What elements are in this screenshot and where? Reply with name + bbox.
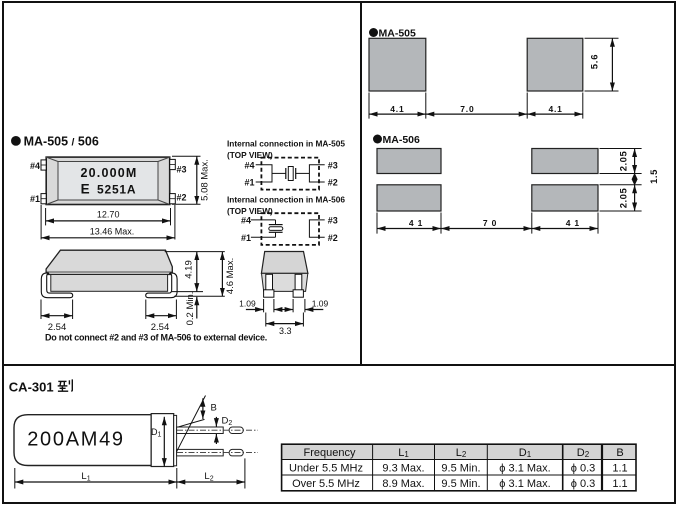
svg-text:#4: #4 — [241, 216, 251, 226]
svg-text:9.5 Min.: 9.5 Min. — [441, 463, 480, 475]
svg-text:#2: #2 — [328, 178, 338, 188]
svg-text:4.1: 4.1 — [390, 104, 404, 114]
svg-text:Over 5.5 MHz: Over 5.5 MHz — [292, 478, 360, 490]
svg-text:7.0: 7.0 — [460, 104, 474, 114]
svg-text:4.6 Max.: 4.6 Max. — [225, 258, 236, 294]
svg-text:(TOP VIEW): (TOP VIEW) — [227, 206, 273, 216]
svg-text:Frequency: Frequency — [304, 447, 356, 459]
svg-text:#2: #2 — [176, 193, 186, 203]
svg-text:2.54: 2.54 — [48, 322, 67, 333]
svg-text:2.05: 2.05 — [619, 151, 630, 172]
svg-text:#4: #4 — [30, 161, 40, 171]
svg-text:#3: #3 — [176, 165, 186, 175]
svg-text:5.08 Max.: 5.08 Max. — [200, 159, 211, 201]
svg-text:B: B — [211, 403, 217, 414]
svg-text:E5251A: E5251A — [81, 182, 137, 197]
svg-text:#3: #3 — [328, 216, 338, 226]
svg-text:1.5: 1.5 — [649, 169, 660, 184]
svg-text:(TOP VIEW): (TOP VIEW) — [227, 150, 273, 160]
svg-text:#4: #4 — [244, 161, 254, 171]
svg-text:3.3: 3.3 — [279, 326, 292, 336]
svg-text:4 1: 4 1 — [409, 218, 423, 228]
svg-text:0.2 Min.: 0.2 Min. — [185, 292, 196, 326]
svg-text:ϕ 0.3: ϕ 0.3 — [571, 463, 596, 475]
svg-text:#1: #1 — [241, 233, 251, 243]
svg-text:#1: #1 — [30, 194, 40, 204]
svg-text:20.000M: 20.000M — [80, 166, 137, 180]
svg-text:1.1: 1.1 — [612, 463, 627, 475]
svg-text:Under 5.5 MHz: Under 5.5 MHz — [289, 463, 363, 475]
svg-text:Internal connection in MA-505: Internal connection in MA-505 — [227, 139, 345, 149]
svg-text:ϕ 0.3: ϕ 0.3 — [571, 478, 596, 490]
svg-text:B: B — [616, 447, 623, 459]
svg-text:5.6: 5.6 — [590, 54, 601, 70]
svg-text:8.9 Max.: 8.9 Max. — [382, 478, 424, 490]
svg-text:CA-301: CA-301 — [9, 379, 54, 394]
svg-text:4.19: 4.19 — [183, 260, 194, 279]
svg-text:1.09: 1.09 — [312, 298, 329, 308]
svg-text:9.3 Max.: 9.3 Max. — [382, 463, 424, 475]
svg-text:1.1: 1.1 — [612, 478, 627, 490]
svg-text:200AM49: 200AM49 — [27, 429, 125, 451]
svg-text:9.5 Min.: 9.5 Min. — [441, 478, 480, 490]
svg-text:4 1: 4 1 — [566, 218, 580, 228]
svg-text:7 0: 7 0 — [483, 218, 497, 228]
svg-text:#2: #2 — [328, 233, 338, 243]
svg-text:Do not connect #2 and #3 of MA: Do not connect #2 and #3 of MA-506 to ex… — [45, 333, 267, 343]
svg-text:13.46 Max.: 13.46 Max. — [90, 227, 135, 237]
svg-text:MA-505 / 506: MA-505 / 506 — [24, 134, 99, 148]
svg-text:2.54: 2.54 — [151, 322, 170, 333]
svg-text:ϕ 3.1 Max.: ϕ 3.1 Max. — [499, 478, 550, 490]
svg-text:1.09: 1.09 — [239, 298, 256, 308]
svg-text:MA-506: MA-506 — [383, 134, 421, 146]
svg-text:ϕ 3.1 Max.: ϕ 3.1 Max. — [499, 463, 550, 475]
svg-text:#1: #1 — [244, 178, 254, 188]
svg-text:4.1: 4.1 — [548, 104, 562, 114]
svg-text:2.05: 2.05 — [619, 188, 630, 209]
svg-text:Internal connection in MA-506: Internal connection in MA-506 — [227, 195, 345, 205]
svg-text:#3: #3 — [328, 161, 338, 171]
svg-text:12.70: 12.70 — [97, 210, 120, 220]
